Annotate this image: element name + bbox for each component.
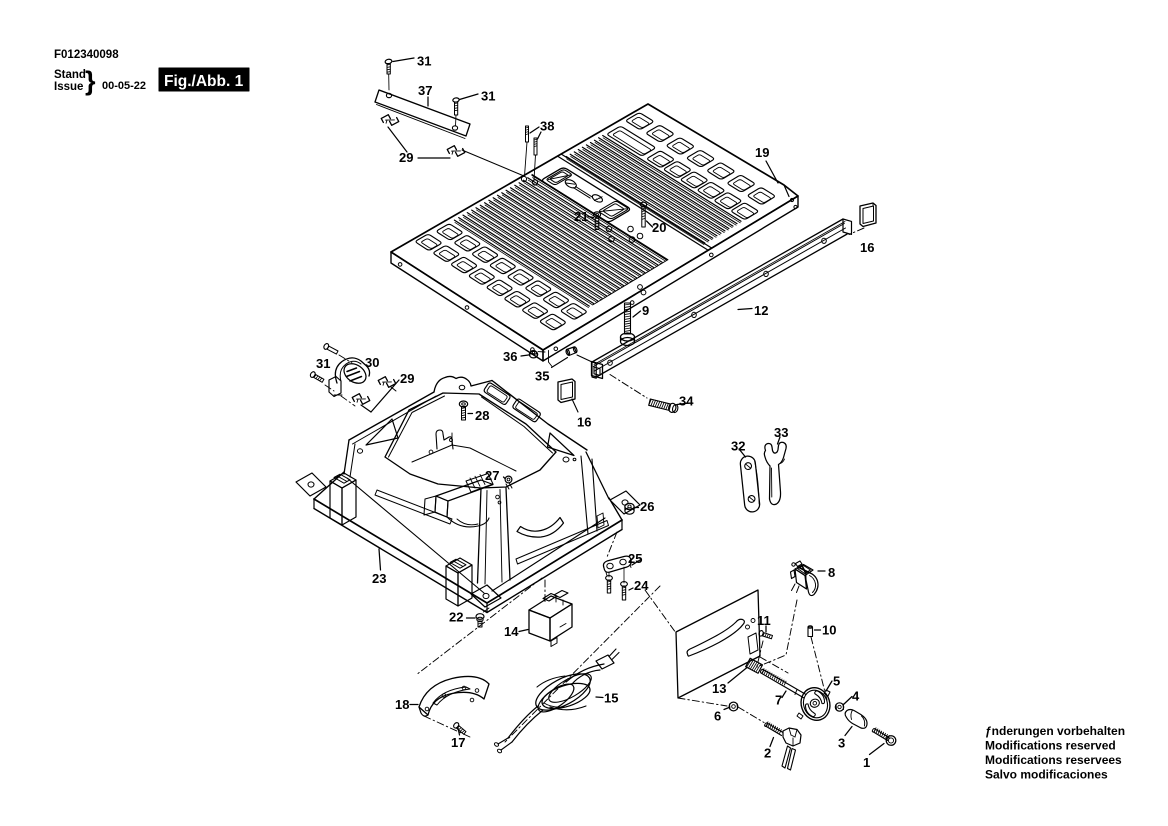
svg-text:00-05-22: 00-05-22 bbox=[102, 80, 146, 92]
svg-text:20: 20 bbox=[652, 220, 666, 235]
svg-text:27: 27 bbox=[485, 468, 499, 483]
svg-text:37: 37 bbox=[418, 83, 432, 98]
svg-text:12: 12 bbox=[754, 303, 768, 318]
svg-text:22: 22 bbox=[449, 610, 463, 625]
svg-text:1: 1 bbox=[863, 755, 870, 770]
svg-text:17: 17 bbox=[451, 735, 465, 750]
svg-text:18: 18 bbox=[395, 697, 409, 712]
svg-text:Stand: Stand bbox=[54, 69, 86, 81]
svg-text:23: 23 bbox=[372, 571, 386, 586]
svg-text:29: 29 bbox=[400, 371, 414, 386]
svg-text:16: 16 bbox=[577, 415, 591, 430]
svg-text:25: 25 bbox=[628, 551, 642, 566]
svg-text:10: 10 bbox=[822, 623, 836, 638]
svg-text:31: 31 bbox=[481, 89, 495, 104]
svg-text:F012340098: F012340098 bbox=[54, 49, 119, 61]
svg-text:15: 15 bbox=[604, 691, 618, 706]
svg-text:31: 31 bbox=[417, 54, 431, 69]
svg-text:13: 13 bbox=[712, 681, 726, 696]
svg-text:Salvo modificaciones: Salvo modificaciones bbox=[985, 768, 1108, 782]
svg-text:31: 31 bbox=[316, 356, 330, 371]
svg-text:Modifications reservees: Modifications reservees bbox=[985, 753, 1122, 767]
svg-text:30: 30 bbox=[365, 355, 379, 370]
svg-text:33: 33 bbox=[774, 425, 788, 440]
svg-text:2: 2 bbox=[764, 746, 771, 761]
svg-text:4: 4 bbox=[852, 689, 860, 704]
svg-text:Issue: Issue bbox=[54, 81, 83, 93]
svg-text:35: 35 bbox=[535, 369, 549, 384]
svg-text:29: 29 bbox=[399, 150, 413, 165]
svg-text:6: 6 bbox=[714, 709, 721, 724]
svg-text:34: 34 bbox=[679, 394, 694, 409]
svg-text:Fig./Abb. 1: Fig./Abb. 1 bbox=[164, 73, 244, 90]
svg-text:26: 26 bbox=[640, 499, 654, 514]
svg-text:21: 21 bbox=[574, 209, 588, 224]
svg-text:32: 32 bbox=[731, 439, 745, 454]
svg-text:7: 7 bbox=[775, 693, 782, 708]
svg-text:9: 9 bbox=[642, 303, 649, 318]
svg-text:36: 36 bbox=[503, 349, 517, 364]
svg-text:16: 16 bbox=[860, 240, 874, 255]
svg-text:5: 5 bbox=[833, 674, 840, 689]
svg-text:19: 19 bbox=[755, 145, 769, 160]
svg-text:11: 11 bbox=[757, 613, 771, 628]
svg-text:24: 24 bbox=[634, 578, 649, 593]
svg-text:3: 3 bbox=[838, 736, 845, 751]
svg-text:28: 28 bbox=[475, 408, 489, 423]
svg-text:Modifications reserved: Modifications reserved bbox=[985, 739, 1116, 753]
svg-text:14: 14 bbox=[504, 624, 519, 639]
svg-text:8: 8 bbox=[828, 565, 835, 580]
svg-text:}: } bbox=[85, 66, 96, 96]
svg-text:ƒnderungen vorbehalten: ƒnderungen vorbehalten bbox=[985, 724, 1125, 738]
svg-text:38: 38 bbox=[540, 119, 554, 134]
